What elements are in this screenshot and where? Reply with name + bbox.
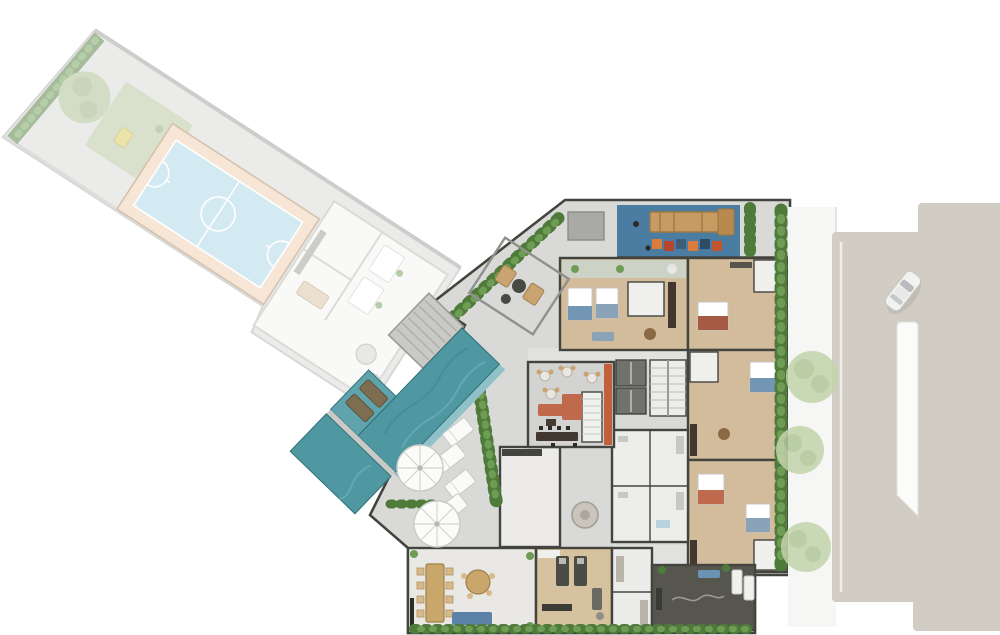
exercise-ball: [596, 612, 604, 620]
unit-b: [688, 258, 788, 350]
bed-d1-blanket: [698, 490, 724, 504]
plant: [526, 552, 534, 560]
play-tower: [718, 209, 734, 235]
unit-b-wardrobe: [730, 262, 752, 268]
chair: [486, 590, 492, 596]
lounge-coffee-table: [546, 419, 556, 426]
laundry-floor: [500, 447, 560, 547]
floorplan-svg: [0, 0, 1000, 635]
unit-c-bath: [690, 352, 718, 382]
zen-lounger-1: [732, 570, 742, 594]
faded-amenity-strip: [0, 20, 460, 409]
chair: [467, 593, 473, 599]
chair: [461, 573, 467, 579]
gym: [536, 548, 612, 633]
lounge: [528, 362, 614, 447]
orange-feature-wall: [604, 364, 612, 445]
unit-c: [688, 350, 788, 460]
unit-d: [688, 460, 788, 572]
unit-a-kitchen: [668, 282, 676, 328]
bed-c-blanket: [750, 378, 778, 392]
umbrella-2: [414, 501, 460, 547]
balcony-sculpt-tree: [667, 264, 677, 274]
unit-c-table: [718, 428, 730, 440]
unit-a: [560, 258, 688, 350]
zen-blue-bench: [698, 570, 720, 578]
playground-figure2: [645, 245, 650, 250]
round-lounge-chair-center: [580, 510, 590, 520]
plant: [658, 566, 666, 574]
service-ramp: [568, 212, 604, 240]
unit-c-kitchen: [690, 424, 697, 456]
spa-block: [612, 548, 652, 633]
street-side: [776, 207, 1000, 627]
floorplan-canvas: [0, 0, 1000, 635]
spa-bench: [616, 556, 624, 582]
laundry-counter: [502, 449, 542, 456]
bath-fixture: [618, 492, 628, 498]
bath-fixture: [676, 436, 684, 454]
bath-tub: [656, 520, 670, 528]
bath-block: [612, 430, 688, 542]
bath-fixture: [676, 492, 684, 510]
plant: [410, 550, 418, 558]
dumbbell-rack: [542, 604, 572, 611]
balcony-plant2: [616, 265, 624, 273]
coworking-long-table: [426, 564, 444, 622]
treadmill-console: [559, 558, 566, 564]
unit-a-table: [644, 328, 656, 340]
spa-bench2: [640, 600, 648, 626]
treadmill-console2: [577, 558, 584, 564]
bed-b-blanket: [698, 316, 728, 330]
coworking-round-table: [466, 570, 490, 594]
stair-core: [650, 360, 686, 416]
unit-a-sofa: [592, 332, 614, 341]
zen-patio: [652, 564, 755, 630]
unit-d-kitchen: [690, 540, 697, 568]
bed-a1-blanket: [568, 306, 592, 320]
lounge-sofa-2: [562, 394, 582, 420]
umbrella-1: [397, 445, 443, 491]
median-island: [897, 322, 918, 516]
playground-figure: [633, 221, 639, 227]
plant: [722, 564, 730, 572]
zen-lounger-2: [744, 576, 754, 600]
coworking-room: [408, 548, 536, 633]
zen-bench-dark: [656, 588, 662, 610]
coworking-blue-sofa: [452, 612, 492, 625]
gym-bench: [592, 588, 602, 610]
lounge-bar-table: [536, 432, 578, 441]
bed-d2-blanket: [746, 518, 770, 532]
coworking-tv: [410, 598, 414, 626]
chair: [489, 573, 495, 579]
bath-fixture: [618, 436, 628, 442]
bed-a2-blanket: [596, 304, 618, 318]
unit-a-bath: [628, 282, 664, 316]
balcony-plant: [571, 265, 579, 273]
